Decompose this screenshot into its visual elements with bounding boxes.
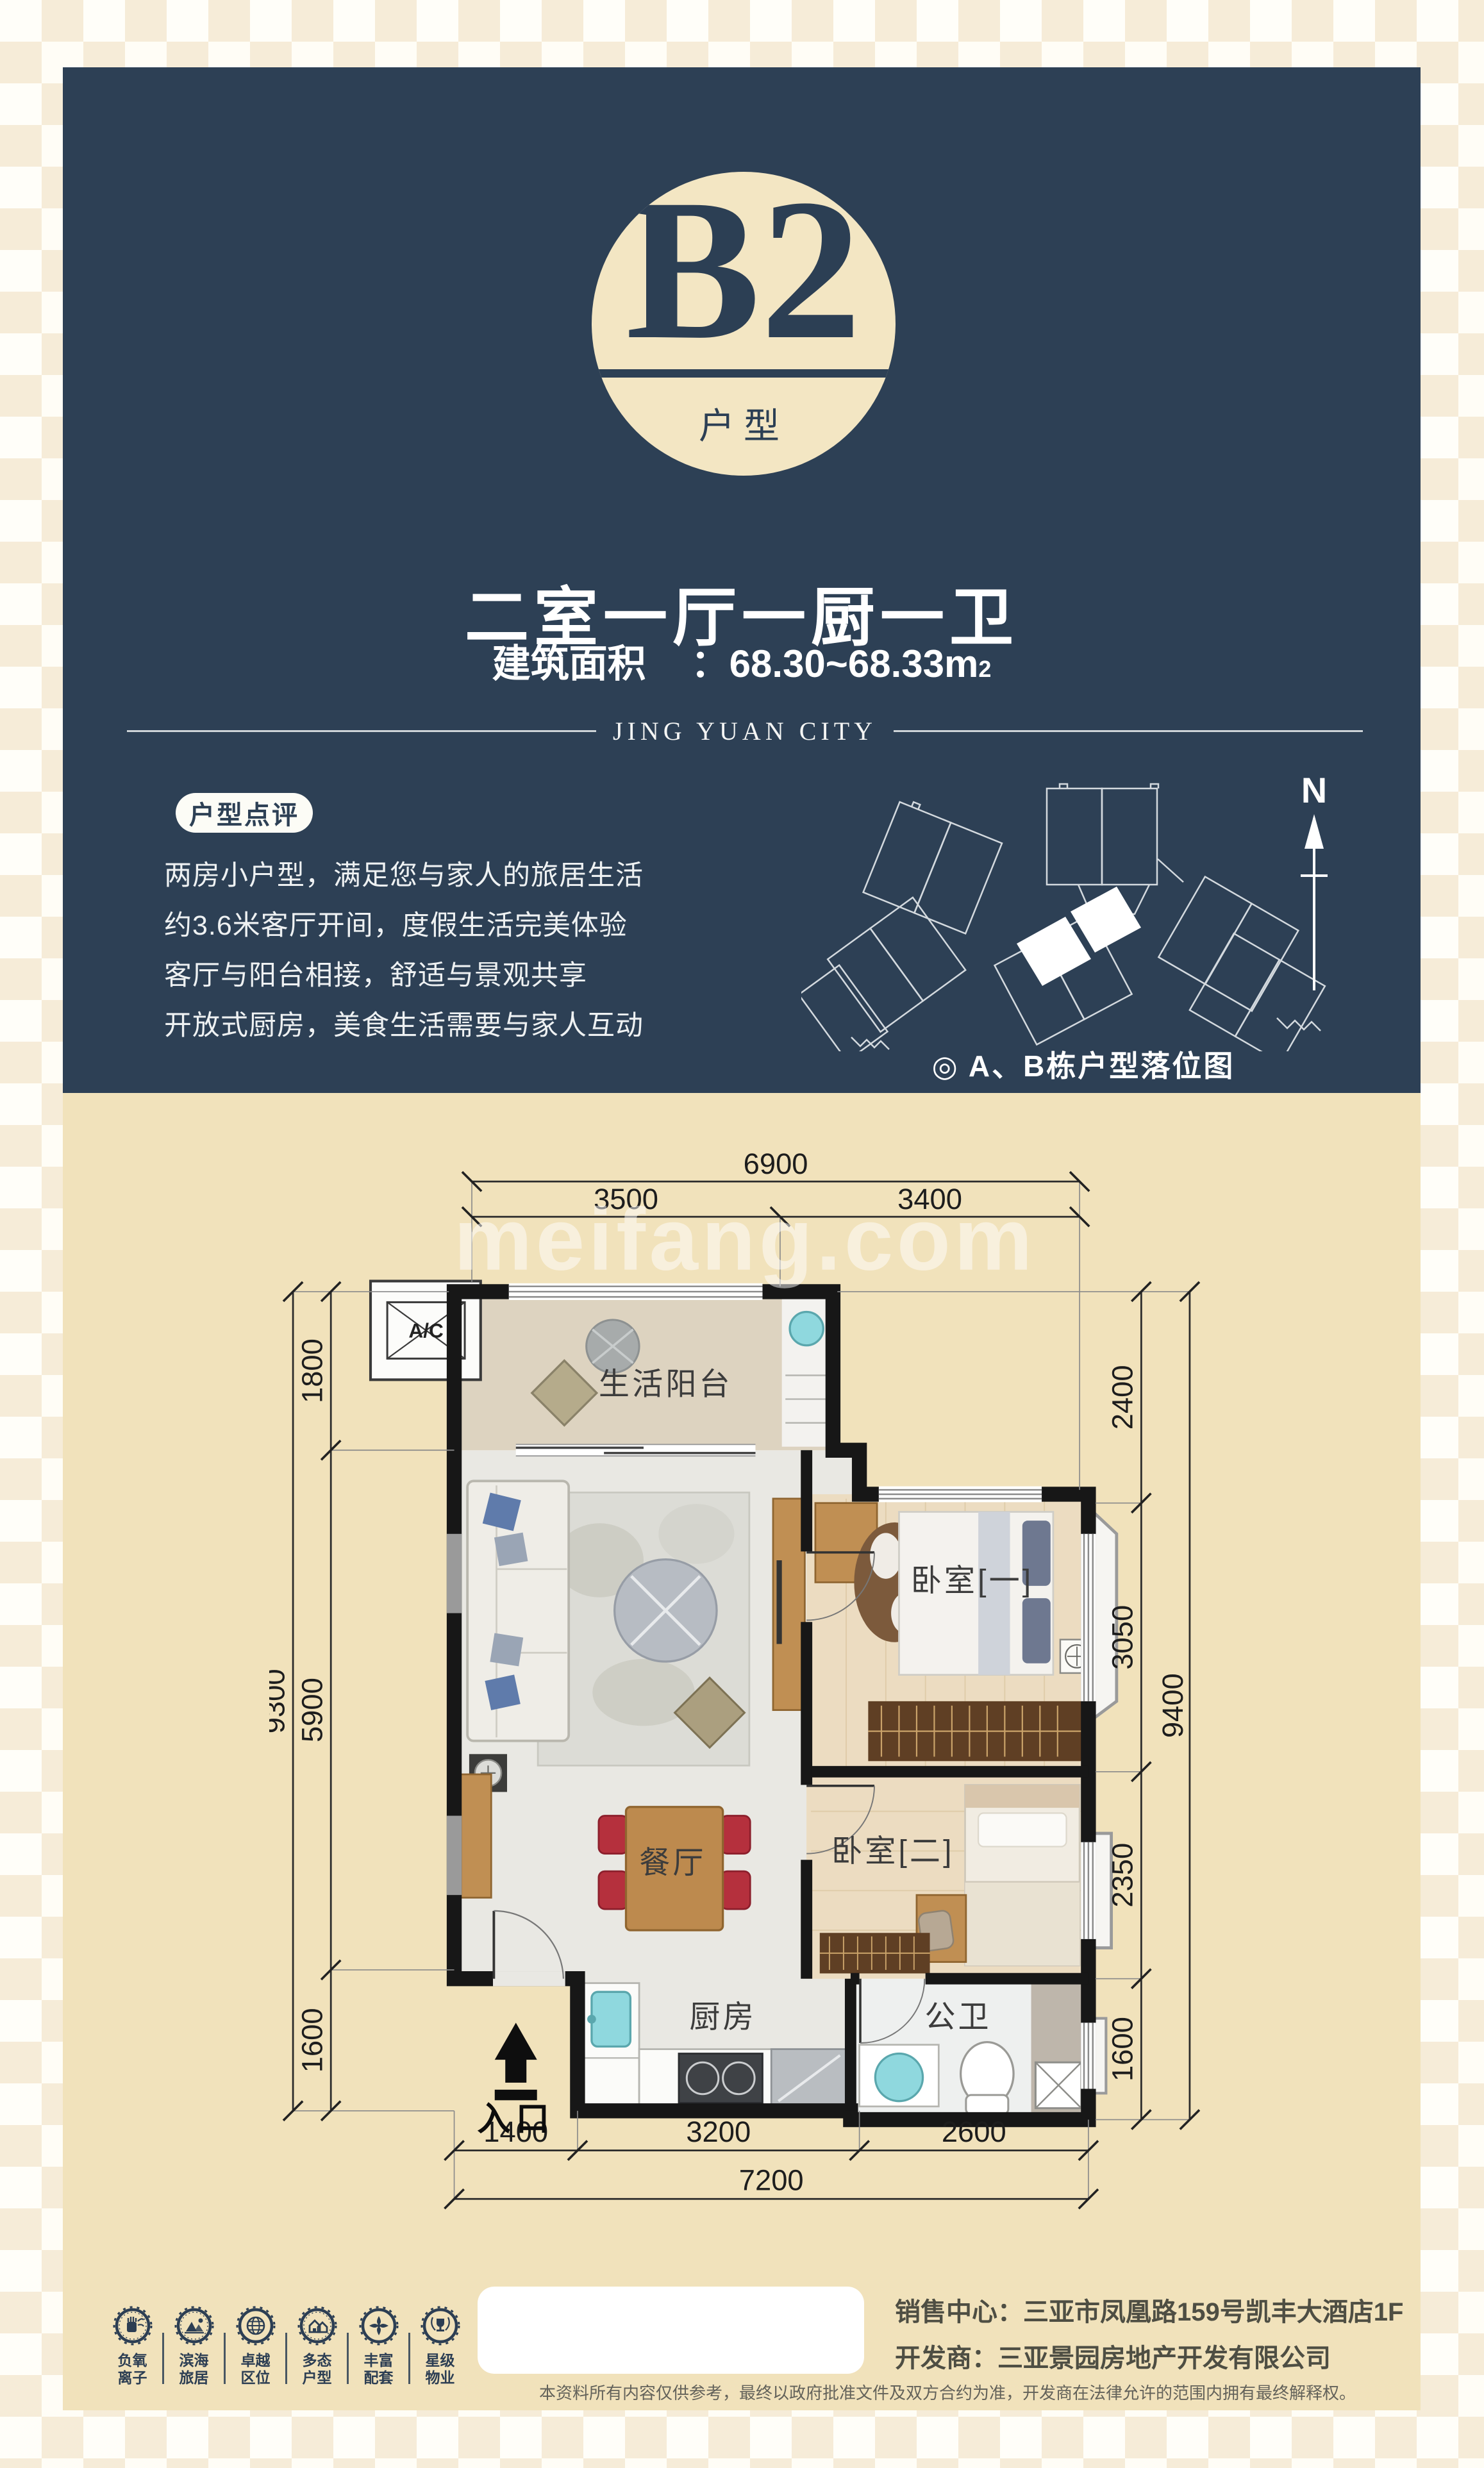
sales-center: 销售中心：三亚市凤凰路159号凯丰大酒店1F [895, 2289, 1403, 2335]
watermark: meifang.com [454, 1191, 1036, 1289]
dim-bottom-seg3: 2600 [942, 2115, 1006, 2148]
globe-icon [233, 2306, 279, 2349]
logo-placeholder [478, 2287, 864, 2374]
feature-label: 多态 户型 [287, 2352, 347, 2387]
feature-label: 丰富 配套 [349, 2352, 408, 2387]
unit-code: B2 [592, 172, 896, 376]
north-compass: N [1301, 770, 1328, 990]
badge-divider [592, 369, 896, 378]
ac-label: A/C [408, 1319, 443, 1342]
review-line: 客厅与阳台相接，舒适与景观共享 [164, 951, 644, 1001]
dim-right-seg2: 3050 [1106, 1605, 1139, 1670]
bath-label: 公卫 [924, 1999, 991, 2034]
review-line: 开放式厨房，美食生活需要与家人互动 [164, 1001, 644, 1051]
area-label: 建筑面积 [492, 633, 646, 688]
feature-amenities: 丰富 配套 [349, 2306, 408, 2387]
seaside-icon [171, 2306, 217, 2349]
house-icon [294, 2306, 340, 2349]
building-outlines [801, 784, 1325, 1051]
dim-left-total: 9300 [269, 1669, 290, 1733]
unit-code-sub: 户型 [592, 397, 896, 449]
feature-label: 星级 物业 [410, 2352, 470, 2387]
entry-label: 入口 [477, 2101, 554, 2138]
balcony-label: 生活阳台 [599, 1367, 733, 1402]
poster-card: B2 户型 二室一厅一厨一卫 建筑面积 ： 68.30~68.33m 2 JIN… [63, 67, 1421, 2410]
dim-bottom-total: 7200 [739, 2164, 804, 2196]
review-line: 约3.6米客厅开间，度假生活完美体验 [164, 901, 644, 951]
dim-left-seg2: 5900 [296, 1678, 328, 1742]
area-sup: 2 [978, 656, 991, 683]
poster-page: { "colors": {"navy": "#2d4055", "cream":… [0, 0, 1484, 2468]
area-colon: ： [691, 633, 729, 688]
brand-divider: JING YUAN CITY [127, 716, 1363, 746]
area-line: 建筑面积 ： 68.30~68.33m 2 [63, 633, 1421, 688]
feature-badges: 负氧 离子 滨海 旅居 [103, 2306, 470, 2387]
brand-name: JING YUAN CITY [613, 716, 877, 746]
dim-right-seg4: 1600 [1106, 2017, 1139, 2081]
trophy-laurel-icon [417, 2306, 463, 2349]
dim-right-total: 9400 [1156, 1673, 1189, 1738]
feature-layouts: 多态 户型 [287, 2306, 347, 2387]
feature-label: 卓越 区位 [226, 2352, 285, 2387]
floor-plan: A/C [269, 1151, 1221, 2243]
dim-left-seg1: 1800 [296, 1338, 328, 1403]
hero-panel: B2 户型 二室一厅一厨一卫 建筑面积 ： 68.30~68.33m 2 JIN… [63, 67, 1421, 1093]
feature-anion: 负氧 离子 [103, 2306, 162, 2387]
bedroom2-label: 卧室[二] [831, 1834, 955, 1869]
dim-left-seg3: 1600 [296, 2008, 328, 2072]
compass-ornament-icon [356, 2306, 402, 2349]
highlighted-units [1017, 887, 1141, 986]
north-label: N [1301, 770, 1327, 810]
developer: 开发商：三亚景园房地产开发有限公司 [895, 2335, 1403, 2381]
sitemap-caption: ◎ A、B栋户型落位图 [801, 1043, 1365, 1085]
kitchen-label: 厨房 [689, 1999, 756, 2034]
feature-location: 卓越 区位 [226, 2306, 285, 2387]
site-location-map: N [801, 763, 1365, 1051]
review-badge: 户型点评 [176, 793, 313, 833]
feature-property: 星级 物业 [410, 2306, 470, 2387]
unit-badge: B2 户型 [592, 172, 896, 476]
entry-arrow [495, 2022, 537, 2100]
bedroom1-label: 卧室[一] [911, 1563, 1034, 1598]
dim-top-total: 6900 [744, 1151, 808, 1180]
dim-bottom-seg2: 3200 [686, 2115, 751, 2148]
area-value: 68.30~68.33m [729, 642, 979, 686]
fist-icon [110, 2306, 156, 2349]
disclaimer: 本资料所有内容仅供参考，最终以政府批准文件及双方合约为准，开发商在法律允许的范围… [512, 2380, 1383, 2404]
divider-line-right [894, 730, 1363, 732]
feature-label: 负氧 离子 [103, 2352, 162, 2387]
divider-line-left [127, 730, 596, 732]
dim-right-seg3: 2350 [1106, 1843, 1139, 1908]
feature-label: 滨海 旅居 [164, 2352, 224, 2387]
dining-label: 餐厅 [639, 1846, 706, 1880]
review-line: 两房小户型，满足您与家人的旅居生活 [164, 851, 644, 901]
feature-seaside: 滨海 旅居 [164, 2306, 224, 2387]
review-lines: 两房小户型，满足您与家人的旅居生活 约3.6米客厅开间，度假生活完美体验 客厅与… [164, 851, 644, 1051]
dim-right-seg1: 2400 [1106, 1365, 1139, 1430]
sales-info: 销售中心：三亚市凤凰路159号凯丰大酒店1F 开发商：三亚景园房地产开发有限公司 [895, 2289, 1403, 2381]
